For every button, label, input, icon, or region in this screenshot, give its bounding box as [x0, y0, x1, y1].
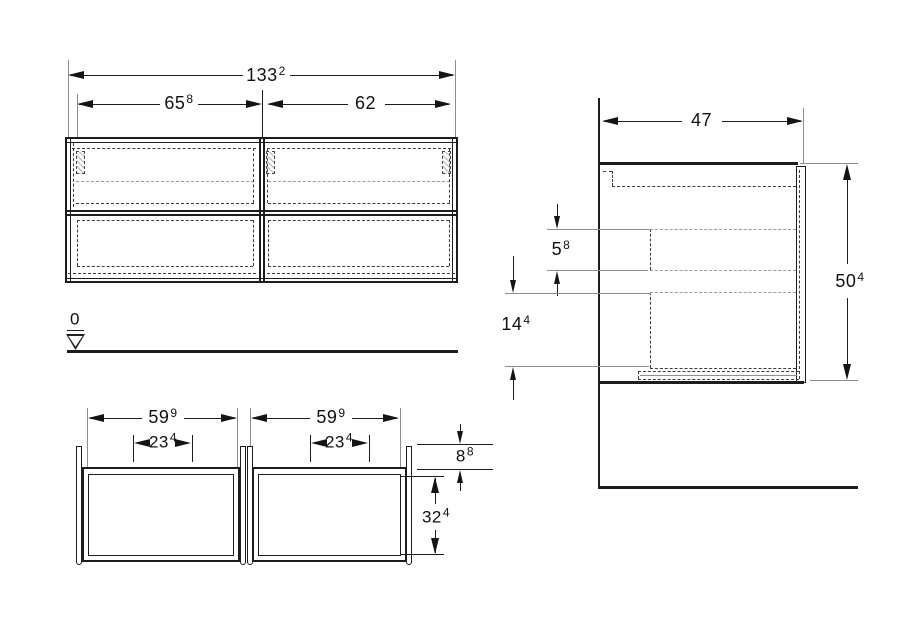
plan-back-offset-arrow-down-icon — [457, 431, 463, 444]
front-dim-left-arrow-right-icon — [246, 100, 262, 108]
technical-drawing-canvas: 1332 658 62 0 — [0, 0, 917, 630]
plan-dim-left-label: 599 — [148, 408, 177, 426]
side-drawer-arrow-down-icon — [510, 280, 516, 293]
plan-dim-right-arrow-right-icon — [383, 414, 399, 422]
plan-cutout-left-label: 234 — [149, 434, 177, 451]
front-cabinet-bottom-inner-line — [67, 278, 456, 279]
side-cabinet-bottom-line — [600, 381, 804, 384]
side-depth-arrow-left-icon — [602, 117, 618, 125]
front-lower-left-dash-top — [77, 220, 253, 221]
front-ext-line-right — [455, 60, 456, 137]
front-dim-right-arrow-left-icon — [267, 100, 283, 108]
side-height-dimline-b — [847, 298, 848, 364]
plan-back-offset-line-bottom — [417, 469, 493, 470]
front-upper-left-dash-side — [73, 143, 74, 207]
plan-depth-label: 324 — [422, 509, 450, 526]
front-lower-left-dash-bottom — [77, 266, 253, 267]
plan-cutout-left-arrow-left-icon — [134, 439, 150, 447]
plan-dim-left-arrow-right-icon — [221, 414, 237, 422]
front-upper-left-dash-side-b — [253, 148, 254, 203]
side-height-line-bottom — [810, 380, 858, 381]
side-front-panel-dash — [799, 170, 800, 379]
side-drawer-arrow-up-icon — [510, 367, 516, 380]
side-dash-bottom-panel-bottom — [638, 379, 799, 380]
side-drawer-line-bottom — [505, 366, 649, 367]
plan-dim-right-arrow-left-icon — [251, 414, 267, 422]
front-dim-right-label: 62 — [355, 94, 377, 112]
side-height-dimline-a — [847, 180, 848, 264]
front-upper-right-dash-bottom — [268, 203, 450, 204]
front-middle-rail-bottom-line — [65, 214, 458, 216]
front-middle-rail-top-line — [65, 210, 458, 212]
front-lower-right-dash-top — [268, 220, 449, 221]
side-dash-top-side — [612, 171, 613, 186]
front-lower-right-dash-side-a — [268, 220, 269, 266]
side-depth-label: 47 — [691, 111, 713, 129]
side-drawer-line-top — [505, 293, 651, 294]
datum-underline — [67, 330, 84, 331]
front-dim-total-label: 1332 — [246, 66, 286, 84]
side-dash-box2-top — [650, 229, 796, 230]
side-gap-arrow-up-icon — [554, 271, 560, 284]
side-dash-bottom-panel-left — [638, 371, 639, 379]
side-depth-arrow-right-icon — [787, 117, 803, 125]
plan-ext-right — [400, 408, 401, 467]
front-lower-left-dash-side-a — [77, 220, 78, 266]
side-dash-box3-bottom — [650, 368, 796, 369]
side-gap-label: 58 — [552, 240, 571, 258]
side-bottom-panel-centerline — [640, 375, 797, 376]
side-height-arrow-down-icon — [843, 364, 851, 380]
plan-dim-right-label: 599 — [316, 408, 345, 426]
side-height-arrow-up-icon — [843, 164, 851, 180]
front-bracket-center-icon — [266, 151, 275, 174]
side-dash-top-shelf — [612, 186, 796, 187]
plan-back-offset-tail-bottom — [460, 483, 461, 491]
plan-dim-left-arrow-left-icon — [88, 414, 104, 422]
plan-back-offset-arrow-up-icon — [457, 470, 463, 483]
side-gap-tail-bottom — [557, 284, 558, 296]
side-dash-top-stub — [603, 171, 612, 172]
front-upper-right-dash-mid — [268, 181, 450, 182]
side-height-label: 504 — [835, 272, 864, 290]
plan-cutout-right-tick-b — [369, 435, 370, 462]
front-lower-right-dash-bottom — [268, 266, 449, 267]
datum-ground-line — [67, 350, 458, 353]
front-lower-left-dash-side-b — [253, 220, 254, 266]
front-lower-right-dash-side-b — [449, 220, 450, 266]
plan-cutout-right-label: 234 — [325, 434, 353, 451]
front-dim-left-label: 658 — [164, 94, 193, 112]
plan-depth-arrow-down-icon — [431, 538, 439, 554]
front-bottom-dash-right — [267, 273, 455, 274]
side-dash-box2-bottom — [650, 270, 796, 271]
plan-ext-center-a — [237, 408, 238, 467]
plan-left-cabinet-inner — [88, 474, 234, 556]
front-ext-line-center — [262, 90, 263, 137]
front-bracket-left-icon — [76, 151, 85, 174]
side-gap-arrow-down-icon — [554, 216, 560, 229]
front-bracket-right-icon — [442, 151, 451, 174]
side-drawer-label: 144 — [501, 315, 530, 333]
plan-depth-arrow-up-icon — [431, 477, 439, 493]
front-bottom-dash-left — [68, 273, 256, 274]
front-dim-total-line-left — [70, 75, 243, 76]
front-upper-left-dash-top — [72, 148, 256, 149]
plan-back-offset-label: 88 — [456, 448, 474, 465]
side-drawer-tail-top — [513, 256, 514, 280]
front-dim-left-arrow-left-icon — [77, 100, 93, 108]
side-dash-box3-top — [650, 292, 796, 293]
front-dim-total-arrow-left-icon — [68, 71, 84, 79]
side-floor-line — [598, 486, 858, 489]
front-cabinet-top-inner-line — [67, 142, 456, 143]
side-gap-line-bottom — [547, 270, 648, 271]
front-dim-total-arrow-right-icon — [439, 71, 455, 79]
front-upper-left-dash-mid — [76, 181, 254, 182]
side-dash-box3-side — [650, 292, 651, 368]
front-dim-total-line-right — [290, 75, 453, 76]
side-dash-bottom-panel-top — [638, 371, 799, 372]
plan-right-cabinet-inner — [258, 474, 401, 556]
front-upper-right-dash-top — [267, 148, 451, 149]
plan-cutout-left-arrow-right-icon — [175, 439, 191, 447]
plan-back-offset-line-top — [417, 444, 493, 445]
side-cabinet-top-line — [600, 162, 798, 165]
front-dim-right-arrow-right-icon — [435, 100, 451, 108]
front-upper-left-dash-bottom — [76, 203, 254, 204]
side-gap-line-top — [547, 229, 651, 230]
plan-rail-center-a — [240, 446, 246, 565]
side-ext-front-top — [803, 108, 804, 163]
plan-depth-line-bottom — [400, 554, 444, 555]
side-front-panel — [796, 166, 806, 383]
plan-cutout-left-tick-b — [192, 435, 193, 462]
side-dash-box2-side — [650, 229, 651, 270]
side-drawer-tail-bottom — [513, 380, 514, 400]
datum-triangle-icon — [66, 334, 85, 350]
datum-zero-label: 0 — [70, 311, 80, 328]
plan-cutout-right-arrow-right-icon — [352, 439, 368, 447]
